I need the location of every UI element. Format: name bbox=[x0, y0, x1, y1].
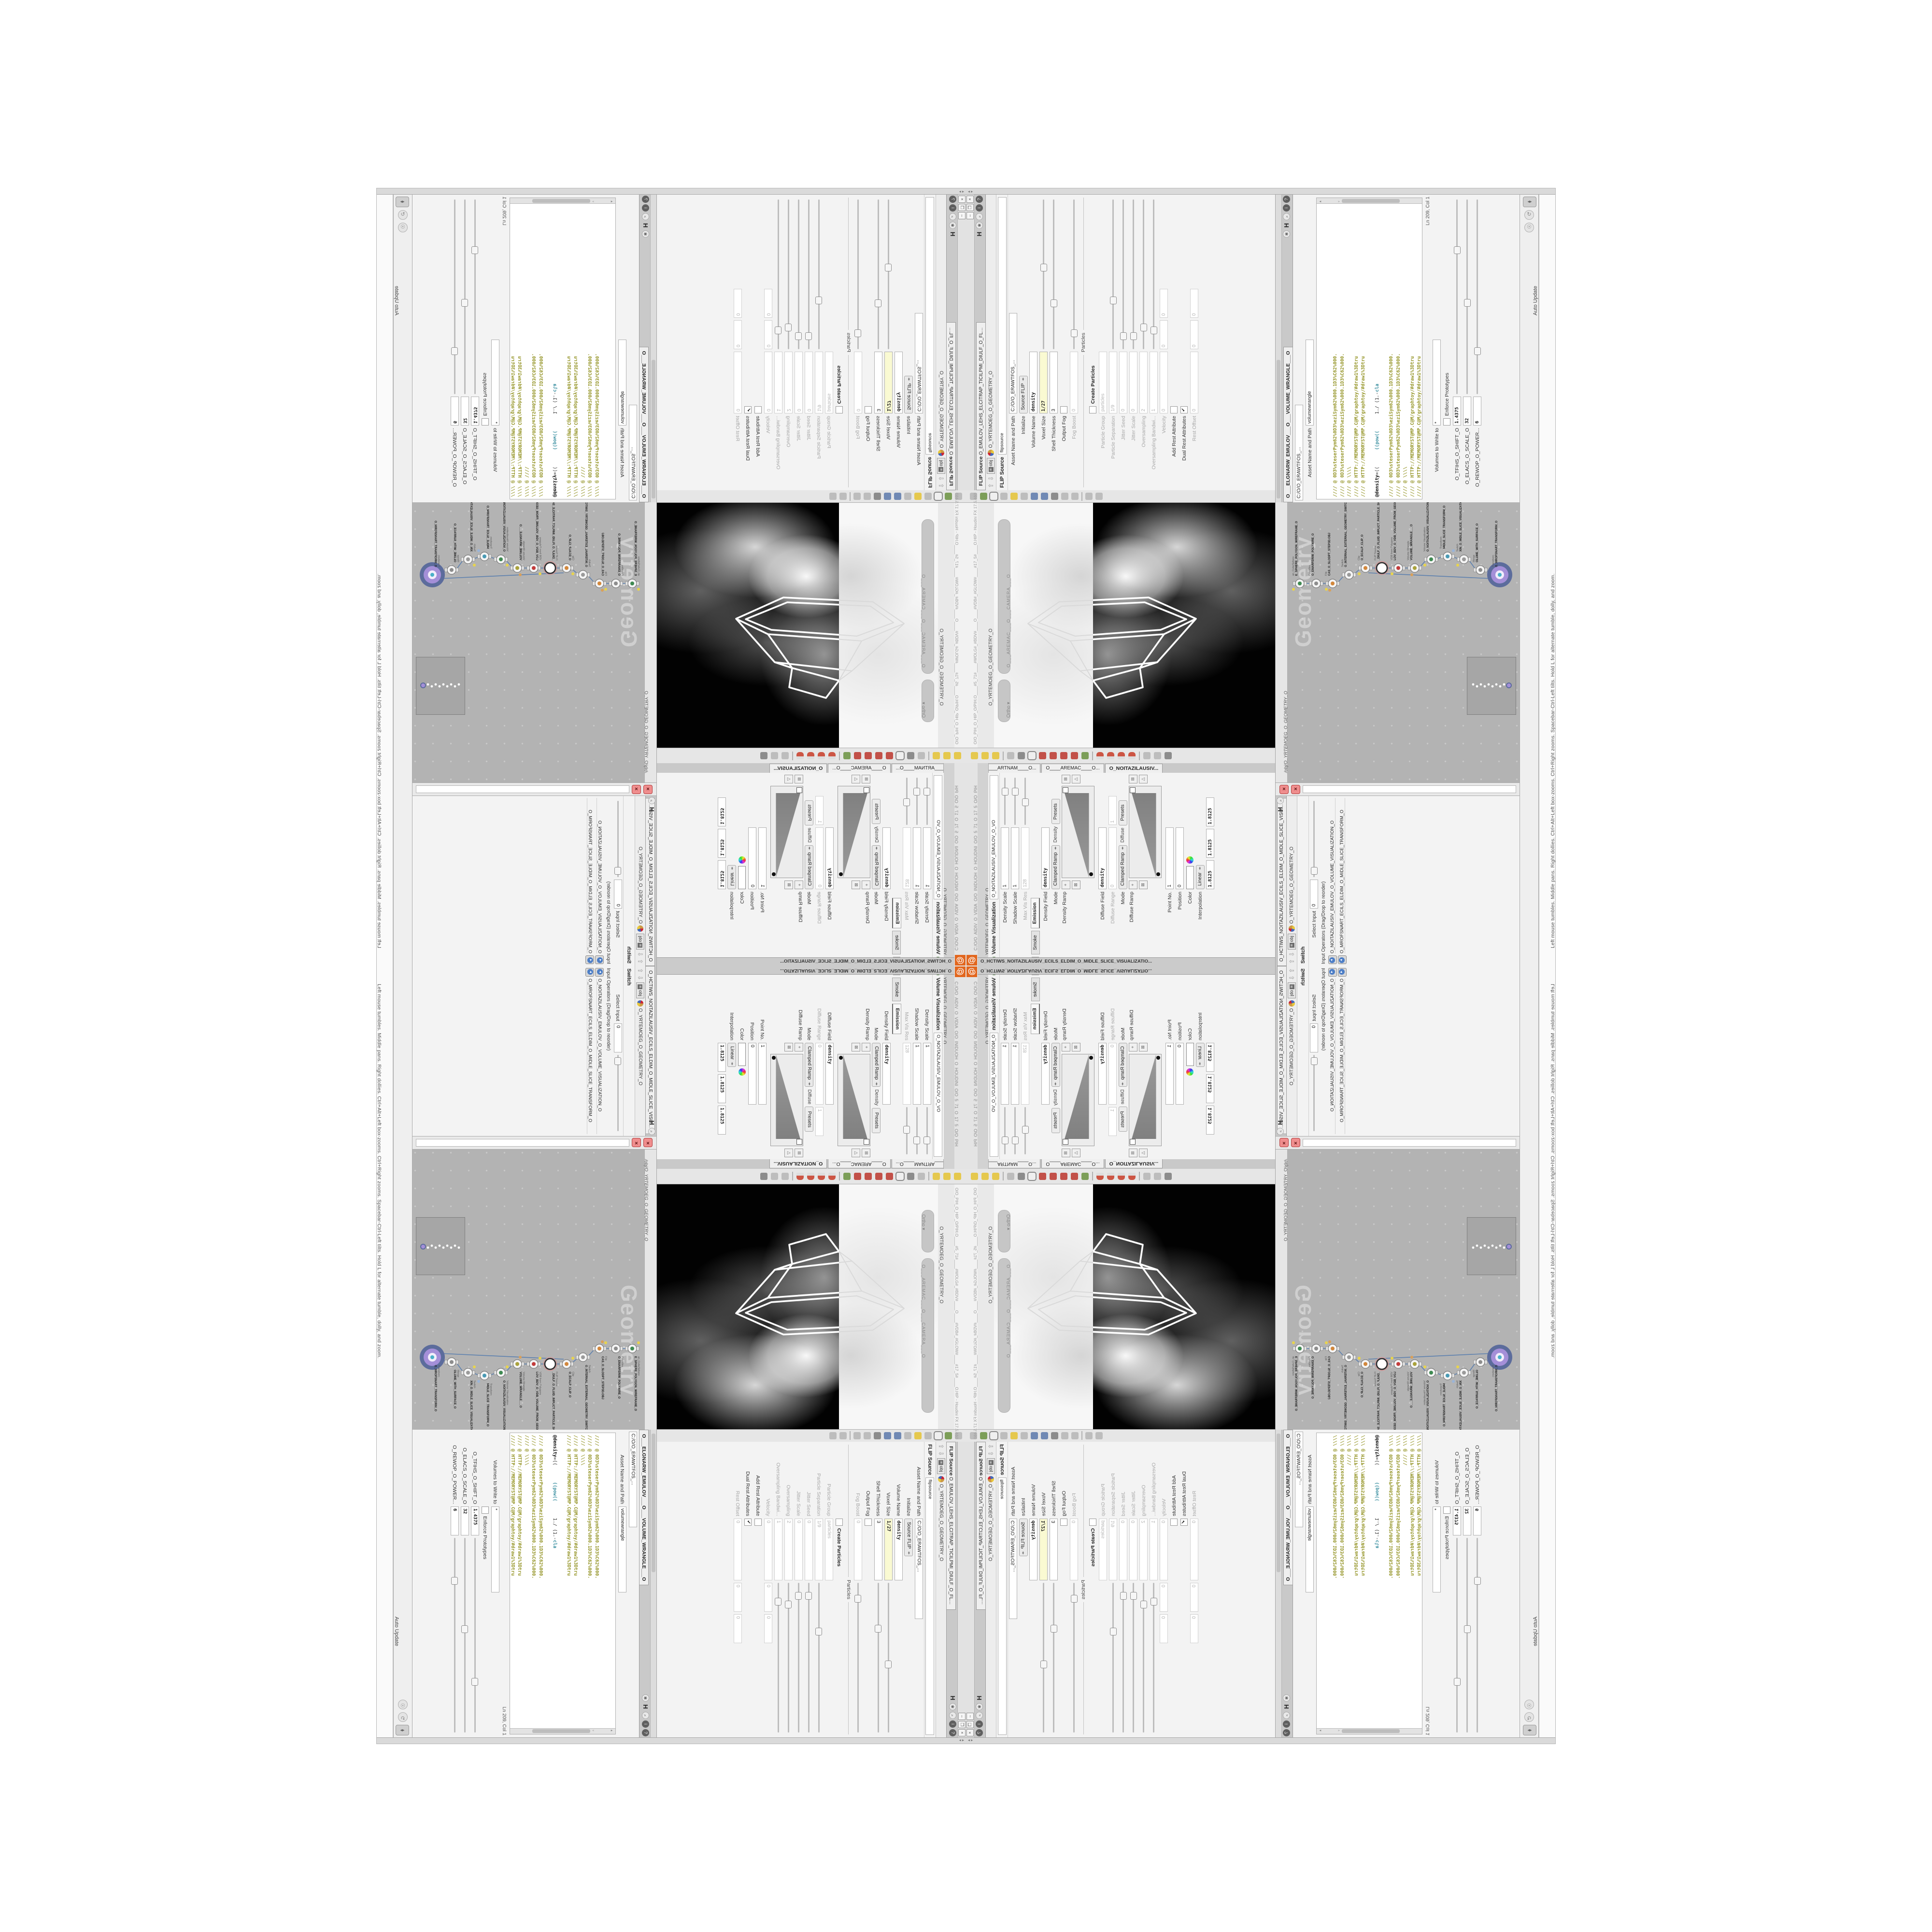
value-field[interactable]: 0 bbox=[795, 352, 803, 413]
value-field[interactable]: 1/9 bbox=[815, 1519, 823, 1580]
color-swatch[interactable] bbox=[739, 866, 746, 889]
update-refresh-icon[interactable]: ↻ bbox=[398, 210, 408, 220]
pane-divider-pill[interactable]: ◂▸ bbox=[396, 1725, 409, 1735]
value-field[interactable]: 0 bbox=[764, 1519, 772, 1580]
pane-divider-pill[interactable]: ◂▸ bbox=[1523, 197, 1536, 207]
houdini-pane-menu-icon[interactable]: H bbox=[642, 1703, 649, 1710]
hip-path-field[interactable]: C:/O/O_ERAWTFOS_... bbox=[629, 1432, 638, 1527]
hand-icon[interactable] bbox=[839, 493, 847, 500]
magnet-prim-icon[interactable] bbox=[818, 1173, 825, 1180]
checkbox-dual-rest-attributes[interactable]: ✔ bbox=[744, 1519, 752, 1526]
value-field[interactable]: 0 bbox=[1070, 1519, 1078, 1580]
minimize-icon[interactable]: – bbox=[958, 212, 966, 219]
ramp-value-field[interactable]: 1.8125 bbox=[718, 1074, 726, 1103]
checkbox-create-particles[interactable] bbox=[836, 406, 843, 413]
checkbox-create-particles[interactable] bbox=[1089, 406, 1096, 413]
spare-value-field[interactable]: 32 bbox=[461, 1506, 469, 1535]
ramp-grid-icon[interactable]: ⊞ bbox=[862, 775, 870, 783]
value-field[interactable]: 0 bbox=[1190, 1519, 1198, 1580]
ramp-delete-icon[interactable]: ⊠ bbox=[784, 881, 793, 889]
viewport-path-label[interactable]: O_YRTEMOEG_O_GEOMETRY_O bbox=[988, 1226, 994, 1304]
value-field[interactable]: 0 bbox=[1129, 352, 1137, 413]
volumes-field[interactable]: * bbox=[491, 1506, 499, 1592]
close-take-icon[interactable]: × bbox=[1291, 1138, 1300, 1148]
value-field[interactable]: 0 bbox=[734, 1583, 742, 1612]
camera-icon[interactable] bbox=[894, 1432, 901, 1439]
obj-context-badge[interactable]: ≣obj bbox=[937, 458, 945, 474]
slider-track[interactable] bbox=[1053, 1583, 1054, 1733]
slider-handle[interactable] bbox=[1002, 1136, 1009, 1144]
value-field[interactable]: density bbox=[895, 1519, 903, 1580]
asset-name-field[interactable]: volumewrangle bbox=[618, 340, 626, 426]
wrangle-hscroll[interactable] bbox=[1276, 195, 1282, 502]
value-field[interactable]: density bbox=[1041, 1043, 1050, 1105]
slider-track[interactable] bbox=[1153, 1583, 1154, 1733]
houdini-pane-menu-icon[interactable]: H bbox=[648, 806, 655, 813]
ramp-value-field[interactable]: 1.8125 bbox=[718, 829, 726, 858]
node-name-field[interactable]: O_NOITAZILAUSIV_EMULOV_O_VO bbox=[934, 775, 943, 899]
path-label[interactable]: O_YRTEMOEG_O_GEOMETRY_O bbox=[988, 1484, 994, 1562]
viewport-canvas[interactable]: O___AREMAC___O___CAMERA___O Ortho ▾ bbox=[657, 1184, 938, 1429]
close-icon[interactable]: × bbox=[966, 196, 974, 203]
value-field[interactable]: C:/O/O_ERAWTFOS_... bbox=[915, 1519, 923, 1619]
checkbox-create-particles[interactable] bbox=[1089, 1519, 1096, 1526]
slider-handle[interactable] bbox=[775, 1598, 781, 1605]
forward-arrow-icon[interactable] bbox=[1143, 752, 1151, 759]
ramp-flag-handle[interactable] bbox=[796, 787, 802, 793]
checkbox-output-fog[interactable] bbox=[865, 406, 872, 413]
node-name-field[interactable]: flipsource bbox=[926, 197, 935, 455]
cone-light-icon[interactable] bbox=[954, 752, 961, 759]
ramp-grid-icon[interactable]: ⊞ bbox=[862, 1149, 870, 1157]
value-field[interactable]: 0 bbox=[805, 1519, 813, 1580]
slider-handle[interactable] bbox=[815, 1628, 822, 1635]
wrangle-pane-tab[interactable]: O___ELGNARW_EMULOV___O___VOLUME_WRANGLE_… bbox=[639, 347, 649, 502]
value-field[interactable]: 1 bbox=[913, 1043, 921, 1105]
ramp-expand-icon[interactable]: △ bbox=[1139, 1149, 1148, 1157]
light-bulb2-icon[interactable] bbox=[904, 1432, 911, 1439]
slider-handle[interactable] bbox=[1464, 1625, 1471, 1633]
slider-track[interactable] bbox=[906, 1107, 908, 1154]
help-icon[interactable]: ? bbox=[1283, 196, 1290, 203]
magnet-prim-icon[interactable] bbox=[1107, 1173, 1114, 1180]
houdini-pane-menu-icon[interactable]: H bbox=[976, 1694, 983, 1702]
nav-down-icon[interactable]: ⇩ bbox=[637, 975, 644, 980]
value-field[interactable]: 128 bbox=[903, 827, 911, 889]
rgb-axis-icon[interactable] bbox=[1081, 1173, 1089, 1180]
pane-divider-pill[interactable]: ◂▸ bbox=[396, 197, 409, 207]
magnifier-icon[interactable]: ⌕ bbox=[642, 1712, 649, 1719]
mode-dropdown[interactable]: Clamped Ramp bbox=[1119, 1043, 1127, 1087]
value-field[interactable]: 0 bbox=[748, 1043, 756, 1105]
slider-track[interactable] bbox=[474, 199, 476, 394]
switch-input-item[interactable]: O_NOITAZILAUSIV_EMULOV_O_VOLUME_VISUALIZ… bbox=[595, 796, 604, 966]
asset-name-field[interactable]: volumewrangle bbox=[1306, 1506, 1314, 1592]
pivot-handle-icon[interactable] bbox=[875, 752, 882, 759]
pivot-handle-icon[interactable] bbox=[1050, 752, 1057, 759]
ramp-add-icon[interactable]: + bbox=[862, 881, 870, 889]
spare-value-field[interactable]: 32 bbox=[461, 397, 469, 426]
gear-icon[interactable]: ✱ bbox=[949, 222, 956, 229]
camera-selector-pill[interactable]: O___AREMAC___O___CAMERA___O bbox=[922, 519, 934, 674]
spare-value-field[interactable]: 1.4375 bbox=[1453, 397, 1461, 426]
nav-up-icon[interactable]: ⇧ bbox=[938, 1444, 945, 1449]
wrangle-hscroll[interactable] bbox=[650, 195, 656, 502]
value-field[interactable]: density bbox=[882, 1043, 891, 1105]
restore-icon[interactable]: ❐ bbox=[958, 1721, 966, 1728]
slider-handle[interactable] bbox=[1130, 332, 1137, 340]
top-scroll-strip[interactable]: ◂ ▸ bbox=[966, 188, 1555, 195]
camera2-icon[interactable] bbox=[884, 1432, 891, 1439]
value-field[interactable]: 1 bbox=[758, 827, 767, 889]
ramp-widget[interactable] bbox=[1062, 1054, 1094, 1146]
mode-dropdown[interactable]: Clamped Ramp bbox=[1051, 1043, 1060, 1087]
manual-cook-icon[interactable]: ☉ bbox=[1524, 223, 1534, 232]
material-icon[interactable] bbox=[1071, 493, 1079, 500]
wire-blast-icon[interactable] bbox=[1071, 1173, 1078, 1180]
value-field[interactable]: 0 bbox=[1190, 289, 1198, 318]
spare-value-field[interactable]: 1.4375 bbox=[471, 1506, 479, 1535]
auto-update-label[interactable]: Auto Update bbox=[394, 286, 399, 315]
obj-context-badge[interactable]: ≣obj bbox=[636, 982, 644, 998]
node-name-field[interactable]: flipsource bbox=[998, 197, 1007, 455]
slider-track[interactable] bbox=[1466, 199, 1468, 394]
presets-button[interactable]: Presets bbox=[1119, 800, 1127, 825]
grid-icon[interactable] bbox=[829, 1432, 837, 1439]
color-wheel-icon[interactable] bbox=[739, 856, 746, 864]
mode-dropdown[interactable]: Clamped Ramp bbox=[1051, 845, 1060, 889]
sky-light-icon[interactable] bbox=[992, 1173, 999, 1180]
selection-box-icon[interactable] bbox=[1028, 1173, 1036, 1180]
axis-handle-icon[interactable] bbox=[886, 752, 893, 759]
magnifier-icon[interactable]: ⌕ bbox=[1277, 797, 1284, 804]
dropdown-interpolation[interactable]: Linear bbox=[1196, 1043, 1205, 1067]
value-field[interactable]: 0 bbox=[734, 320, 742, 349]
ramp-expand-icon[interactable]: △ bbox=[1072, 1149, 1080, 1157]
hand-icon[interactable] bbox=[839, 1432, 847, 1439]
wrangle-pane-tab[interactable]: O___ELGNARW_EMULOV___O___VOLUME_WRANGLE_… bbox=[1283, 347, 1293, 502]
slider-track[interactable] bbox=[808, 1583, 810, 1733]
value-field[interactable]: particles bbox=[1099, 352, 1107, 413]
checkbox-output-fog[interactable] bbox=[1060, 1519, 1067, 1526]
obj-context-badge[interactable]: ≣obj bbox=[937, 1458, 945, 1474]
slider-track[interactable] bbox=[857, 1583, 859, 1733]
slider-handle[interactable] bbox=[1012, 788, 1019, 796]
ramp-delete-icon[interactable]: ⊠ bbox=[1139, 1043, 1148, 1051]
info-icon[interactable]: i bbox=[976, 204, 983, 212]
slider-handle[interactable] bbox=[1464, 299, 1471, 307]
slider-handle[interactable] bbox=[815, 297, 822, 304]
slider-track[interactable] bbox=[878, 199, 879, 349]
pose-icon[interactable] bbox=[924, 1432, 932, 1439]
value-field[interactable]: 0 bbox=[764, 289, 772, 318]
volviz-tab[interactable]: O____AREMAC____O... bbox=[828, 1159, 890, 1168]
spare-value-field[interactable]: 6 bbox=[1473, 1506, 1481, 1535]
close-icon[interactable]: × bbox=[958, 1729, 966, 1736]
ramp-handle[interactable] bbox=[1156, 872, 1160, 876]
slider-track[interactable] bbox=[1043, 199, 1044, 349]
slider-handle[interactable] bbox=[1454, 246, 1461, 254]
vex-code-editor[interactable]: //// @ 0D3%steserPym62%0D3%eziSym62%000.… bbox=[510, 198, 616, 499]
ramp-add-icon[interactable]: + bbox=[1062, 881, 1070, 889]
obj-context-badge[interactable]: ≣obj bbox=[636, 934, 644, 950]
value-field[interactable]: 1 bbox=[1150, 1519, 1158, 1580]
magnet-prim-icon[interactable] bbox=[818, 752, 825, 759]
dropdown-interpolation[interactable]: Linear bbox=[728, 1043, 737, 1067]
ramp-widget[interactable] bbox=[1129, 1054, 1162, 1146]
ramp-value-field[interactable]: 1.8125 bbox=[718, 797, 726, 826]
material-icon[interactable] bbox=[853, 493, 861, 500]
spare-value-field[interactable]: 6 bbox=[451, 1506, 459, 1535]
slider-handle[interactable] bbox=[461, 1625, 468, 1633]
ortho-selector-pill[interactable]: Ortho ▾ bbox=[922, 680, 934, 722]
slider-track[interactable] bbox=[878, 1583, 879, 1733]
checkbox-create-particles[interactable] bbox=[836, 1519, 843, 1526]
back-arrow-icon[interactable] bbox=[1007, 1173, 1014, 1180]
slider-track[interactable] bbox=[1122, 1583, 1124, 1733]
light-bulb-icon[interactable] bbox=[1010, 493, 1018, 500]
slider-handle[interactable] bbox=[795, 332, 802, 340]
viewport-canvas[interactable]: O___AREMAC___O___CAMERA___O Ortho ▾ bbox=[994, 1184, 1275, 1429]
forward-arrow-icon[interactable] bbox=[781, 752, 789, 759]
ramp-add-icon[interactable]: + bbox=[1062, 1043, 1070, 1051]
cone-light-icon[interactable] bbox=[971, 752, 978, 759]
switch-input-item[interactable]: O_MROFSNART_ECILS_ELDIM_O_MIDLE_SLICE_TR… bbox=[1337, 796, 1347, 966]
brush-icon[interactable] bbox=[945, 493, 952, 500]
magnet-prim-icon[interactable] bbox=[1107, 752, 1114, 759]
ramp-expand-icon[interactable]: △ bbox=[784, 1149, 793, 1157]
light-bulb-icon[interactable] bbox=[914, 493, 922, 500]
slider-handle[interactable] bbox=[785, 1601, 792, 1608]
select-input-field[interactable]: 0 bbox=[614, 880, 622, 909]
checkbox-add-rest-attribute[interactable] bbox=[1170, 406, 1178, 413]
reorder-arrow-icon[interactable] bbox=[1328, 955, 1337, 964]
slider-handle[interactable] bbox=[1040, 1661, 1047, 1668]
value-field[interactable]: C:/O/O_ERAWTFOS_... bbox=[915, 313, 923, 413]
nav-up-icon[interactable]: ⇧ bbox=[987, 1444, 995, 1449]
auto-update-label[interactable]: Auto Update bbox=[1533, 1617, 1538, 1646]
slider-handle[interactable] bbox=[775, 327, 781, 334]
ramp-handle[interactable] bbox=[772, 1056, 776, 1060]
auto-update-label[interactable]: Auto Update bbox=[1533, 286, 1538, 315]
select-input-field[interactable]: 0 bbox=[1310, 880, 1318, 909]
volviz-side-tab[interactable]: O_YRTEMOEG_O_GEOMETRY_O bbox=[978, 763, 989, 966]
construction-plane-icon[interactable] bbox=[907, 752, 914, 759]
value-field[interactable]: 1 bbox=[1165, 827, 1174, 889]
ramp-add-icon[interactable]: + bbox=[1129, 881, 1137, 889]
slider-handle[interactable] bbox=[1002, 788, 1009, 796]
gear-icon[interactable]: ✱ bbox=[642, 1694, 649, 1702]
bottom-pane-tab[interactable]: O_HCTIWS_NOITAZILAUSIV_ECILS_ELDIM_O_MID… bbox=[657, 966, 954, 975]
brush-icon[interactable] bbox=[980, 493, 987, 500]
slider-handle[interactable] bbox=[913, 1136, 920, 1144]
viewport-canvas[interactable]: O___AREMAC___O___CAMERA___O Ortho ▾ bbox=[994, 503, 1275, 748]
camera-selector-pill[interactable]: O___AREMAC___O___CAMERA___O bbox=[998, 519, 1010, 674]
value-field[interactable]: 0 bbox=[734, 352, 742, 413]
ramp-flag-handle[interactable] bbox=[1130, 1139, 1136, 1145]
value-field[interactable]: 1 bbox=[923, 827, 931, 889]
vex-code-editor[interactable]: //// @ 0D3%steserPym62%0D3%eziSym62%000.… bbox=[1316, 1433, 1422, 1734]
value-field[interactable]: density bbox=[825, 1043, 834, 1105]
info-icon[interactable]: i bbox=[1283, 1720, 1290, 1728]
nav-up-icon[interactable]: ⇧ bbox=[637, 968, 644, 973]
ramp-delete-icon[interactable]: ⊠ bbox=[1072, 1043, 1080, 1051]
value-field[interactable]: density bbox=[1098, 827, 1107, 889]
sky-light-icon[interactable] bbox=[933, 1173, 940, 1180]
ramp-value-field[interactable]: 1.8125 bbox=[718, 860, 726, 889]
light-bulb2-icon[interactable] bbox=[1021, 493, 1028, 500]
select-visible-icon[interactable] bbox=[1154, 1173, 1161, 1180]
close-take-icon[interactable]: × bbox=[632, 1138, 641, 1148]
code-scrollbar[interactable] bbox=[510, 198, 615, 204]
gear-icon[interactable]: ✱ bbox=[976, 222, 983, 229]
value-field[interactable]: 1 bbox=[774, 1519, 782, 1580]
asset-name-field[interactable]: volumewrangle bbox=[618, 1506, 626, 1592]
slider-handle[interactable] bbox=[805, 1592, 812, 1600]
value-field[interactable]: 1 bbox=[758, 1043, 767, 1105]
construction-plane-icon[interactable] bbox=[907, 1173, 914, 1180]
value-field[interactable]: 0 bbox=[854, 352, 862, 413]
wrangle-pane-tab[interactable]: O___ELGNARW_EMULOV___O___VOLUME_WRANGLE_… bbox=[1283, 1430, 1293, 1585]
value-field[interactable]: density bbox=[1029, 352, 1037, 413]
camera-selector-pill[interactable]: O___AREMAC___O___CAMERA___O bbox=[922, 1258, 934, 1413]
tab-smoke[interactable]: Smoke bbox=[893, 978, 901, 1001]
ramp-delete-icon[interactable]: ⊠ bbox=[852, 1043, 860, 1051]
path-label[interactable]: O_YRTEMOEG_O_GEOMETRY_O bbox=[1289, 847, 1294, 924]
houdini-pane-menu-icon[interactable]: H bbox=[976, 230, 983, 238]
wire-blast-icon[interactable] bbox=[854, 1173, 861, 1180]
ramp-value-field[interactable]: 1.8125 bbox=[1206, 797, 1214, 826]
hip-path-field[interactable]: C:/O/O_ERAWTFOS_... bbox=[1295, 1432, 1303, 1527]
ramp-value-field[interactable]: 1.8125 bbox=[1206, 1074, 1214, 1103]
magnifier-icon[interactable]: ⌕ bbox=[976, 213, 983, 220]
node-name-field[interactable]: O_NOITAZILAUSIV_EMULOV_O_VO bbox=[934, 1033, 943, 1157]
hand-icon[interactable] bbox=[1085, 493, 1093, 500]
value-field[interactable]: C:/O/O_ERAWTFOS_... bbox=[1009, 1519, 1017, 1619]
value-field[interactable]: density bbox=[895, 352, 903, 413]
forward-arrow-icon[interactable] bbox=[1143, 1173, 1151, 1180]
viewport-path-label[interactable]: O_YRTEMOEG_O_GEOMETRY_O bbox=[938, 1226, 944, 1304]
checkbox-dual-rest-attributes[interactable]: ✔ bbox=[744, 406, 752, 413]
reorder-arrow-icon[interactable] bbox=[585, 955, 594, 964]
presets-button[interactable]: Presets bbox=[872, 1108, 881, 1133]
value-field[interactable]: 0 bbox=[815, 1043, 824, 1105]
hand-icon[interactable] bbox=[1085, 1432, 1093, 1439]
ramp-add-icon[interactable]: + bbox=[862, 1043, 870, 1051]
slider-track[interactable] bbox=[1133, 1583, 1134, 1733]
rgb-axis-icon[interactable] bbox=[1081, 752, 1089, 759]
value-field[interactable]: 3 bbox=[874, 352, 882, 413]
help-icon[interactable]: ? bbox=[976, 196, 983, 203]
value-field[interactable]: 2 bbox=[1139, 1519, 1148, 1580]
magnifier-icon[interactable]: ⌕ bbox=[1277, 1128, 1284, 1135]
close-take-icon[interactable]: × bbox=[632, 785, 641, 794]
close-icon[interactable]: × bbox=[966, 1729, 974, 1736]
slider-track[interactable] bbox=[1143, 199, 1144, 349]
presets-button[interactable]: Presets bbox=[805, 800, 814, 825]
switch-input-item[interactable]: O_MROFSNART_ECILS_ELDIM_O_MIDLE_SLICE_TR… bbox=[585, 796, 595, 966]
hip-path-field[interactable]: C:/O/O_ERAWTFOS_... bbox=[629, 405, 638, 500]
dropdown-initialize[interactable]: Source FLIP bbox=[1019, 1519, 1028, 1556]
magnet-multi-icon[interactable] bbox=[796, 752, 804, 759]
slider-track[interactable] bbox=[1133, 199, 1134, 349]
presets-button[interactable]: Presets bbox=[872, 799, 881, 824]
bottom-pane-tab[interactable]: O_HCTIWS_NOITAZILAUSIV_ECILS_ELDIM_O_MID… bbox=[978, 957, 1275, 966]
slider-handle[interactable] bbox=[1474, 347, 1481, 355]
dropdown-initialize[interactable]: Source FLIP bbox=[905, 376, 913, 413]
magnet-multi-icon[interactable] bbox=[1128, 1173, 1136, 1180]
houdini-pane-menu-icon[interactable]: H bbox=[1283, 1703, 1290, 1710]
volumes-field[interactable]: * bbox=[1433, 1506, 1441, 1592]
compass-icon[interactable] bbox=[760, 1173, 767, 1180]
rgb-axis-icon[interactable] bbox=[843, 1173, 851, 1180]
slider-track[interactable] bbox=[1053, 199, 1054, 349]
slider-track[interactable] bbox=[798, 199, 799, 349]
value-field[interactable]: 1 bbox=[1165, 1043, 1174, 1105]
close-take-icon[interactable]: × bbox=[643, 1138, 653, 1148]
selection-box-icon[interactable] bbox=[1028, 752, 1036, 759]
ramp-flag-handle[interactable] bbox=[864, 787, 869, 793]
render-region-icon[interactable] bbox=[874, 1432, 881, 1439]
network-minimap[interactable] bbox=[1467, 1217, 1516, 1275]
cone-light-icon[interactable] bbox=[954, 1173, 961, 1180]
switch-input-item[interactable]: O_MROFSNART_ECILS_ELDIM_O_MIDLE_SLICE_TR… bbox=[585, 966, 595, 1136]
presets-button[interactable]: Presets bbox=[1051, 799, 1060, 824]
ramp-handle[interactable] bbox=[772, 872, 776, 876]
volumes-field[interactable]: * bbox=[1433, 340, 1441, 426]
magnet-grid-icon[interactable] bbox=[828, 752, 836, 759]
slider-handle[interactable] bbox=[1140, 324, 1147, 331]
volviz-tab[interactable]: O_NOITAZILAUSIV... bbox=[769, 1159, 827, 1168]
nav-down-icon[interactable]: ⇩ bbox=[987, 1451, 995, 1456]
light-bulb-icon[interactable] bbox=[914, 1432, 922, 1439]
mode-dropdown[interactable]: Clamped Ramp bbox=[805, 1043, 814, 1087]
wire-blast-icon[interactable] bbox=[854, 752, 861, 759]
bottom-pane-tab[interactable]: O_HCTIWS_NOITAZILAUSIV_ECILS_ELDIM_O_MID… bbox=[978, 966, 1275, 975]
mode-dropdown[interactable]: Clamped Ramp bbox=[872, 845, 881, 889]
help-icon[interactable]: ? bbox=[1283, 1729, 1290, 1736]
camera2-icon[interactable] bbox=[1041, 1432, 1048, 1439]
value-field[interactable]: particles bbox=[825, 1519, 833, 1580]
value-field[interactable]: 2 bbox=[784, 1519, 793, 1580]
peak-handle-icon[interactable] bbox=[865, 1173, 872, 1180]
ramp-grid-icon[interactable]: ⊞ bbox=[1062, 775, 1070, 783]
houdini-pane-menu-icon[interactable]: H bbox=[648, 1119, 655, 1126]
asset-name-field[interactable]: volumewrangle bbox=[1306, 340, 1314, 426]
magnet-grid-icon[interactable] bbox=[828, 1173, 836, 1180]
slider-handle[interactable] bbox=[805, 332, 812, 340]
checkbox-add-rest-attribute[interactable] bbox=[1170, 1519, 1178, 1526]
cone-light-icon[interactable] bbox=[971, 1173, 978, 1180]
auto-update-label[interactable]: Auto Update bbox=[394, 1617, 399, 1646]
magnifier-icon[interactable]: ⌕ bbox=[976, 1712, 983, 1719]
top-scroll-strip[interactable]: ◂ ▸ bbox=[377, 188, 966, 195]
slider-handle[interactable] bbox=[1022, 1126, 1029, 1134]
slider-track[interactable] bbox=[1112, 199, 1114, 349]
value-field[interactable]: 1 bbox=[774, 352, 782, 413]
value-field[interactable]: 0 bbox=[1129, 1519, 1137, 1580]
manual-cook-icon[interactable]: ☉ bbox=[398, 223, 408, 232]
slider-track[interactable] bbox=[926, 778, 928, 825]
value-field[interactable]: 0 bbox=[1119, 352, 1127, 413]
compass-icon[interactable] bbox=[1165, 752, 1172, 759]
hip-path-field[interactable]: C:/O/O_ERAWTFOS_... bbox=[1295, 405, 1303, 500]
magnet-multi-icon[interactable] bbox=[1128, 752, 1136, 759]
value-field[interactable]: 1/9 bbox=[1109, 352, 1117, 413]
spare-value-field[interactable]: 1.4375 bbox=[1453, 1506, 1461, 1535]
value-field[interactable]: 0 bbox=[1160, 352, 1168, 413]
slider-track[interactable] bbox=[474, 1538, 476, 1733]
